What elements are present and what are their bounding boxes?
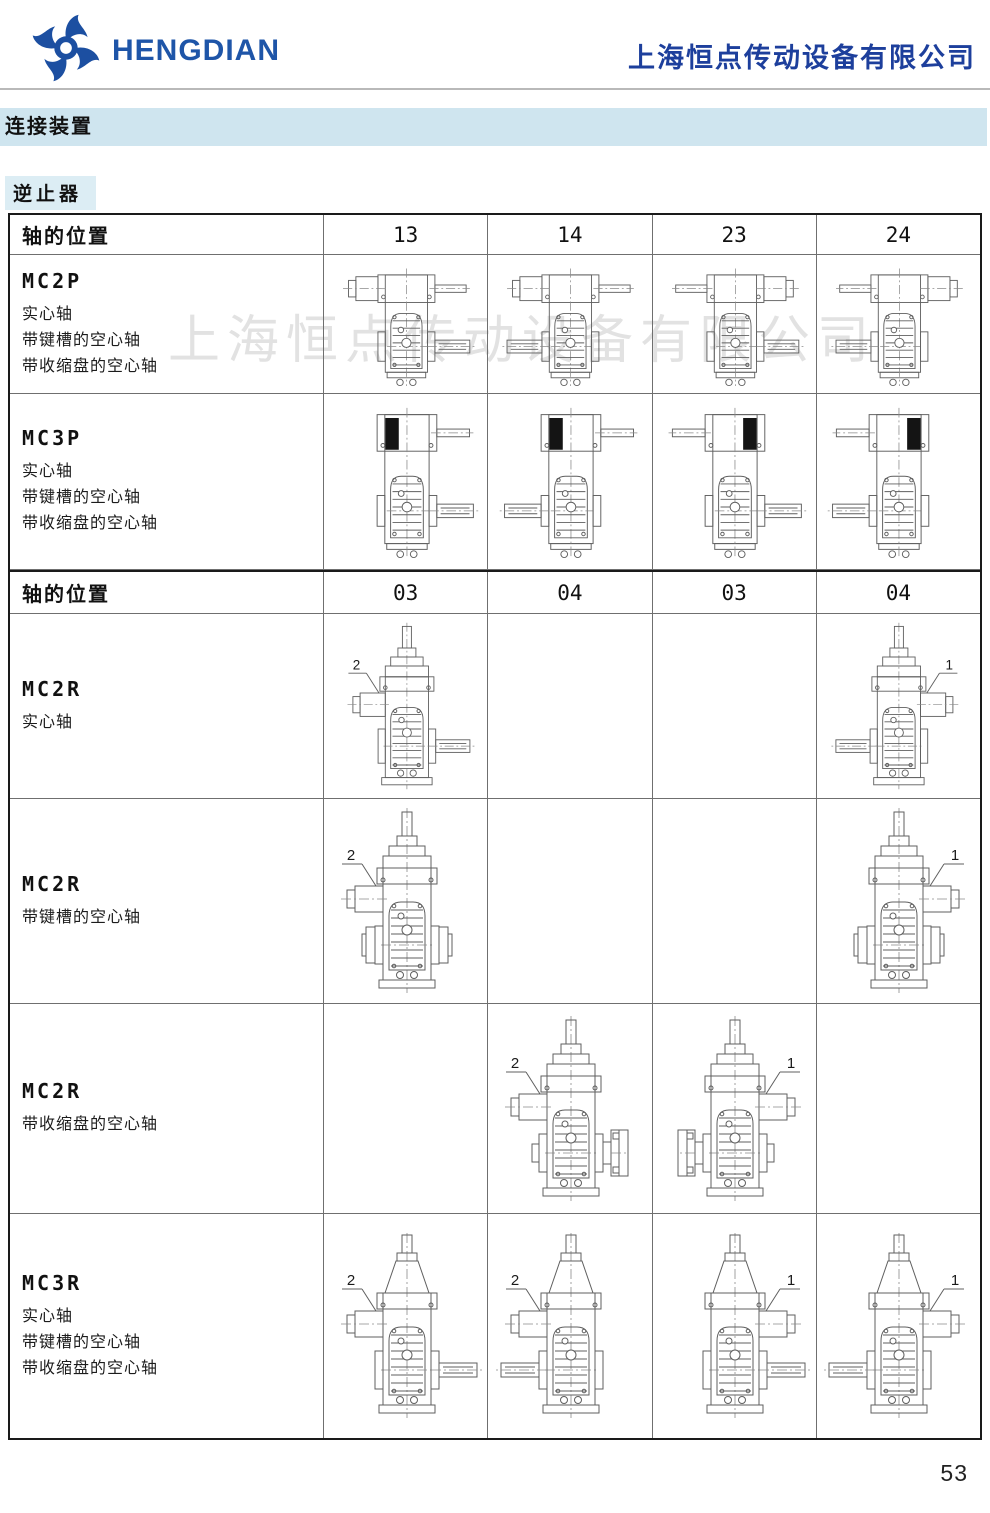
shaft-type-description: 实心轴 [22, 459, 323, 485]
model-label-cell: MC3R实心轴带键槽的空心轴带收缩盘的空心轴 [10, 1214, 323, 1438]
drawing-cell-03: 2 [323, 614, 487, 798]
drawing-cell-04: 2 [487, 1214, 651, 1438]
drawing-cell-14 [487, 255, 651, 393]
gearbox-drawing [657, 401, 811, 563]
drawing-cell-04 [487, 799, 651, 1003]
svg-text:2: 2 [352, 657, 360, 672]
drawing-cell-04: 1 [816, 614, 980, 798]
drawing-cell-03 [652, 799, 816, 1003]
table-row-mc2r: MC2R带收缩盘的空心轴21 [10, 1004, 980, 1214]
svg-text:1: 1 [951, 1272, 959, 1289]
gearbox-drawing [661, 262, 808, 387]
table-row-mc2r: MC2R带键槽的空心轴21 [10, 799, 980, 1004]
shaft-type-description: 实心轴 [22, 302, 323, 328]
drawing-cell-23 [652, 394, 816, 569]
svg-text:2: 2 [346, 1272, 354, 1289]
model-name: MC2R [22, 677, 323, 701]
model-name: MC2P [22, 269, 323, 293]
header-divider [0, 88, 990, 90]
position-code-13: 13 [323, 215, 487, 254]
position-code-24: 24 [816, 215, 980, 254]
drawing-cell-14 [487, 394, 651, 569]
svg-text:1: 1 [787, 1055, 795, 1072]
shaft-type-description: 带收缩盘的空心轴 [22, 1356, 323, 1382]
gearbox-drawing [825, 262, 972, 387]
gearbox-drawing: 2 [334, 621, 478, 792]
gearbox-drawing [332, 262, 479, 387]
subsection-title: 逆止器 [5, 176, 96, 210]
shaft-type-description: 实心轴 [22, 1304, 323, 1330]
shaft-type-description: 带收缩盘的空心轴 [22, 354, 323, 380]
drawing-cell-03 [652, 614, 816, 798]
positions-table: 轴的位置13142324MC2P实心轴带键槽的空心轴带收缩盘的空心轴MC3P实心… [8, 213, 982, 1440]
drawing-cell-03 [323, 1004, 487, 1213]
drawing-cell-23 [652, 255, 816, 393]
table-row-mc2p: MC2P实心轴带键槽的空心轴带收缩盘的空心轴 [10, 255, 980, 394]
page-header: HENGDIAN 上海恒点传动设备有限公司 [0, 0, 990, 88]
drawing-cell-13 [323, 394, 487, 569]
gearbox-drawing: 1 [818, 806, 978, 996]
shaft-type-description: 带键槽的空心轴 [22, 905, 323, 931]
gearbox-drawing: 1 [818, 1231, 978, 1421]
page-number: 53 [940, 1460, 968, 1487]
svg-text:2: 2 [346, 847, 354, 864]
model-name: MC2R [22, 872, 323, 896]
shaft-position-label: 轴的位置 [10, 572, 323, 613]
shaft-type-description: 带键槽的空心轴 [22, 1330, 323, 1356]
shaft-type-description: 带键槽的空心轴 [22, 485, 323, 511]
model-label-cell: MC3P实心轴带键槽的空心轴带收缩盘的空心轴 [10, 394, 323, 569]
shaft-type-description: 带收缩盘的空心轴 [22, 1112, 323, 1138]
drawing-cell-04: 2 [487, 1004, 651, 1213]
shaft-type-description: 带键槽的空心轴 [22, 328, 323, 354]
drawing-cell-04 [816, 1004, 980, 1213]
model-label-cell: MC2R带收缩盘的空心轴 [10, 1004, 323, 1213]
drawing-cell-03: 2 [323, 1214, 487, 1438]
shaft-type-description: 实心轴 [22, 710, 323, 736]
logo-wordmark: HENGDIAN [112, 34, 280, 68]
company-logo: HENGDIAN [30, 12, 280, 84]
position-code-23: 23 [652, 215, 816, 254]
section-title: 连接装置 [0, 108, 987, 146]
gearbox-drawing: 2 [326, 806, 486, 996]
pinwheel-logo-icon [30, 12, 102, 84]
shaft-type-description: 带收缩盘的空心轴 [22, 511, 323, 537]
drawing-cell-04 [487, 614, 651, 798]
model-label-cell: MC2R带键槽的空心轴 [10, 799, 323, 1003]
model-name: MC2R [22, 1079, 323, 1103]
position-code-14: 14 [487, 215, 651, 254]
table-row-mc2r: MC2R实心轴21 [10, 614, 980, 799]
svg-text:1: 1 [951, 847, 959, 864]
svg-text:2: 2 [511, 1272, 519, 1289]
model-name: MC3P [22, 426, 323, 450]
shaft-position-header-row: 轴的位置13142324 [10, 215, 980, 255]
gearbox-drawing [821, 401, 975, 563]
drawing-cell-03: 1 [652, 1004, 816, 1213]
gearbox-drawing [493, 401, 647, 563]
drawing-cell-24 [816, 255, 980, 393]
position-code-04: 04 [487, 572, 651, 613]
svg-text:1: 1 [787, 1272, 795, 1289]
company-name: 上海恒点传动设备有限公司 [628, 36, 976, 75]
gearbox-drawing: 1 [654, 1231, 814, 1421]
gearbox-drawing: 1 [654, 1014, 814, 1204]
gearbox-drawing: 2 [490, 1014, 650, 1204]
position-code-03: 03 [652, 572, 816, 613]
position-code-04: 04 [816, 572, 980, 613]
drawing-cell-03: 2 [323, 799, 487, 1003]
shaft-position-header-row: 轴的位置03040304 [10, 570, 980, 614]
drawing-cell-13 [323, 255, 487, 393]
gearbox-drawing: 2 [490, 1231, 650, 1421]
gearbox-drawing [329, 401, 483, 563]
model-label-cell: MC2R实心轴 [10, 614, 323, 798]
table-row-mc3r: MC3R实心轴带键槽的空心轴带收缩盘的空心轴2211 [10, 1214, 980, 1438]
position-code-03: 03 [323, 572, 487, 613]
svg-text:1: 1 [946, 657, 954, 672]
table-row-mc3p: MC3P实心轴带键槽的空心轴带收缩盘的空心轴 [10, 394, 980, 570]
model-name: MC3R [22, 1271, 323, 1295]
drawing-cell-03: 1 [652, 1214, 816, 1438]
drawing-cell-24 [816, 394, 980, 569]
model-label-cell: MC2P实心轴带键槽的空心轴带收缩盘的空心轴 [10, 255, 323, 393]
shaft-position-label: 轴的位置 [10, 215, 323, 254]
svg-text:2: 2 [511, 1055, 519, 1072]
drawing-cell-04: 1 [816, 799, 980, 1003]
gearbox-drawing [496, 262, 643, 387]
gearbox-drawing: 1 [826, 621, 970, 792]
drawing-cell-04: 1 [816, 1214, 980, 1438]
gearbox-drawing: 2 [326, 1231, 486, 1421]
